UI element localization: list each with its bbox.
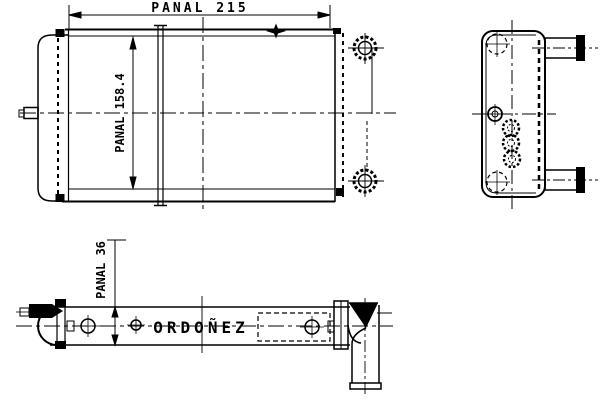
- dimension-depth: PANAL 36: [94, 240, 126, 345]
- outlet-pipe-bottom: [532, 167, 598, 193]
- hose-port-top: [348, 33, 384, 64]
- dim-arrow-up: [112, 307, 118, 317]
- dim-arrow-right: [318, 12, 330, 18]
- hidden-hole-top: [485, 32, 510, 57]
- dim-arrow-up: [130, 38, 136, 50]
- dim-arrow-left: [69, 12, 81, 18]
- joint-tab-bottom-right: [336, 188, 344, 196]
- drawing-sheet: PANAL 215: [0, 0, 600, 400]
- center-fitting: [485, 104, 506, 125]
- outlet-elbow: [348, 298, 392, 397]
- mounting-strap: [154, 25, 167, 206]
- bottom-right-end: [328, 298, 392, 397]
- side-view: [472, 20, 598, 209]
- bottom-left-end: [16, 299, 74, 349]
- dimension-width-label: PANAL 215: [151, 1, 248, 16]
- joint-tab-bottom-left: [56, 194, 65, 202]
- bottom-view: PANAL 36: [16, 240, 393, 397]
- left-tank: [19, 29, 68, 202]
- hole-marker-2: [127, 316, 145, 334]
- hole-marker-3: [300, 316, 324, 338]
- joint-tab-top-right: [333, 28, 341, 34]
- dim-arrow-down: [130, 177, 136, 189]
- dimension-height: PANAL 158.4: [113, 38, 136, 189]
- core-outline: [62, 29, 335, 202]
- radiator-technical-drawing: PANAL 215: [0, 0, 600, 400]
- hidden-hole-bottom: [485, 170, 510, 195]
- dimension-height-label: PANAL 158.4: [113, 73, 127, 152]
- dimension-depth-label: PANAL 36: [94, 241, 108, 299]
- dim-arrow-down: [112, 335, 118, 345]
- dimension-width: PANAL 215: [69, 1, 330, 29]
- outlet-pipe-top: [532, 35, 598, 61]
- hose-port-bottom: [348, 165, 384, 197]
- front-view: PANAL 215: [19, 1, 396, 211]
- brand-label: ORDOÑEZ: [153, 318, 248, 337]
- joint-tab-top-left: [56, 29, 65, 37]
